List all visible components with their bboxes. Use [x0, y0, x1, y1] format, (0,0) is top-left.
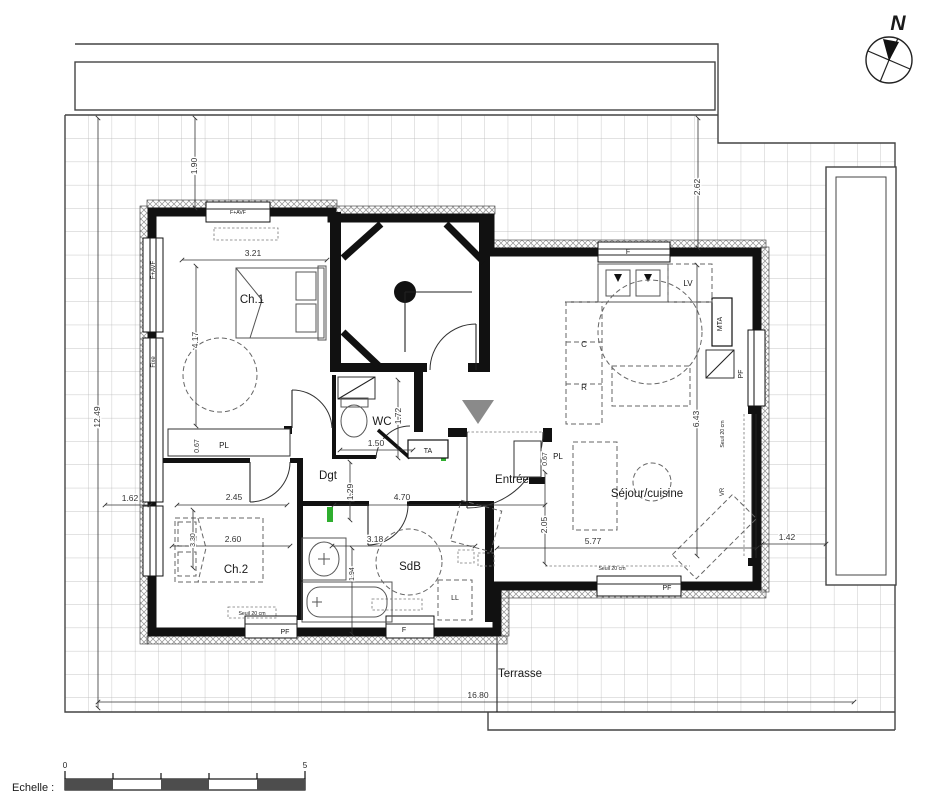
label-ch1: Ch.1	[240, 294, 264, 306]
dim-1-50: 1.50	[368, 438, 385, 448]
window-left-ch2	[143, 506, 163, 576]
dim-2-45: 2.45	[226, 492, 243, 502]
dim-3-21: 3.21	[245, 248, 262, 258]
label-fixe: Fixe	[151, 356, 157, 368]
dim-1-29: 1.29	[345, 483, 355, 500]
label-seuil-ch2: Seuil 20 cm	[238, 611, 265, 617]
label-dgt: Dgt	[319, 470, 338, 482]
closet-pl-entree	[514, 441, 541, 477]
label-f-top: F	[626, 249, 630, 256]
dim-12-49: 12.49	[92, 406, 102, 428]
label-pl-hall: PL	[219, 441, 229, 450]
label-mta: MTA	[717, 317, 724, 332]
label-entree: Entrée	[495, 474, 529, 486]
label-f-bottom: F	[402, 627, 406, 634]
label-vr: VR	[720, 487, 726, 496]
dim-1-94: 1.94	[349, 567, 356, 581]
label-ta: TA	[424, 448, 433, 455]
floor-plan-sheet: Ch.1 Ch.2 WC SdB Dgt Entrée Séjour/cuisi…	[0, 0, 943, 800]
north-arrow-icon: N	[866, 12, 912, 83]
dim-1-42: 1.42	[779, 532, 796, 542]
dim-3-30: 3.30	[190, 533, 197, 547]
closet-pl-hall	[168, 429, 290, 456]
planter	[826, 167, 896, 585]
window-left-favf	[143, 238, 163, 332]
scale-bar: Echelle : 0 5	[12, 761, 308, 794]
scale-start: 0	[63, 761, 68, 770]
window-top-kitchen	[598, 242, 670, 262]
label-sdb: SdB	[399, 561, 421, 573]
label-favf-left: F+AVF	[151, 260, 157, 279]
top-band	[75, 62, 715, 110]
label-r: R	[581, 383, 587, 392]
dim-1-90: 1.90	[189, 157, 199, 174]
floor-plan-drawing: Ch.1 Ch.2 WC SdB Dgt Entrée Séjour/cuisi…	[0, 0, 943, 800]
dim-6-43: 6.43	[691, 410, 701, 427]
label-seuil-sejour: Seuil 20 cm	[598, 566, 625, 572]
dim-5-77: 5.77	[585, 536, 602, 546]
dim-3-18: 3.18	[367, 534, 384, 544]
scale-end: 5	[303, 761, 308, 770]
label-seuil-right: Seuil 20 cm	[720, 420, 726, 447]
dim-0-67-entree: 0.67	[542, 452, 549, 466]
scale-label: Echelle :	[12, 782, 54, 794]
label-ch2: Ch.2	[224, 564, 248, 576]
label-terrasse: Terrasse	[498, 668, 542, 680]
label-sejour: Séjour/cuisine	[611, 488, 683, 500]
label-wc: WC	[372, 416, 391, 428]
label-favf-top: F+AVF	[230, 210, 246, 216]
label-pf-ch2: PF	[281, 629, 290, 636]
label-lv: LV	[683, 279, 693, 288]
window-right-pf	[748, 330, 765, 406]
dim-2-60: 2.60	[225, 534, 242, 544]
label-c: C	[581, 340, 587, 349]
label-ll: LL	[451, 595, 459, 602]
label-pf-right: PF	[738, 370, 745, 379]
dim-1-62: 1.62	[122, 493, 139, 503]
north-label: N	[890, 12, 906, 35]
label-pl-entree: PL	[553, 452, 563, 461]
dim-4-17: 4.17	[190, 331, 200, 348]
dim-0-67-hall: 0.67	[194, 439, 201, 453]
dim-2-62: 2.62	[692, 178, 702, 195]
dim-4-70: 4.70	[394, 492, 411, 502]
dim-2-05: 2.05	[539, 516, 549, 533]
label-pf-sejour: PF	[663, 585, 672, 592]
dim-16-80: 16.80	[467, 690, 489, 700]
dim-1-72: 1.72	[393, 407, 403, 424]
